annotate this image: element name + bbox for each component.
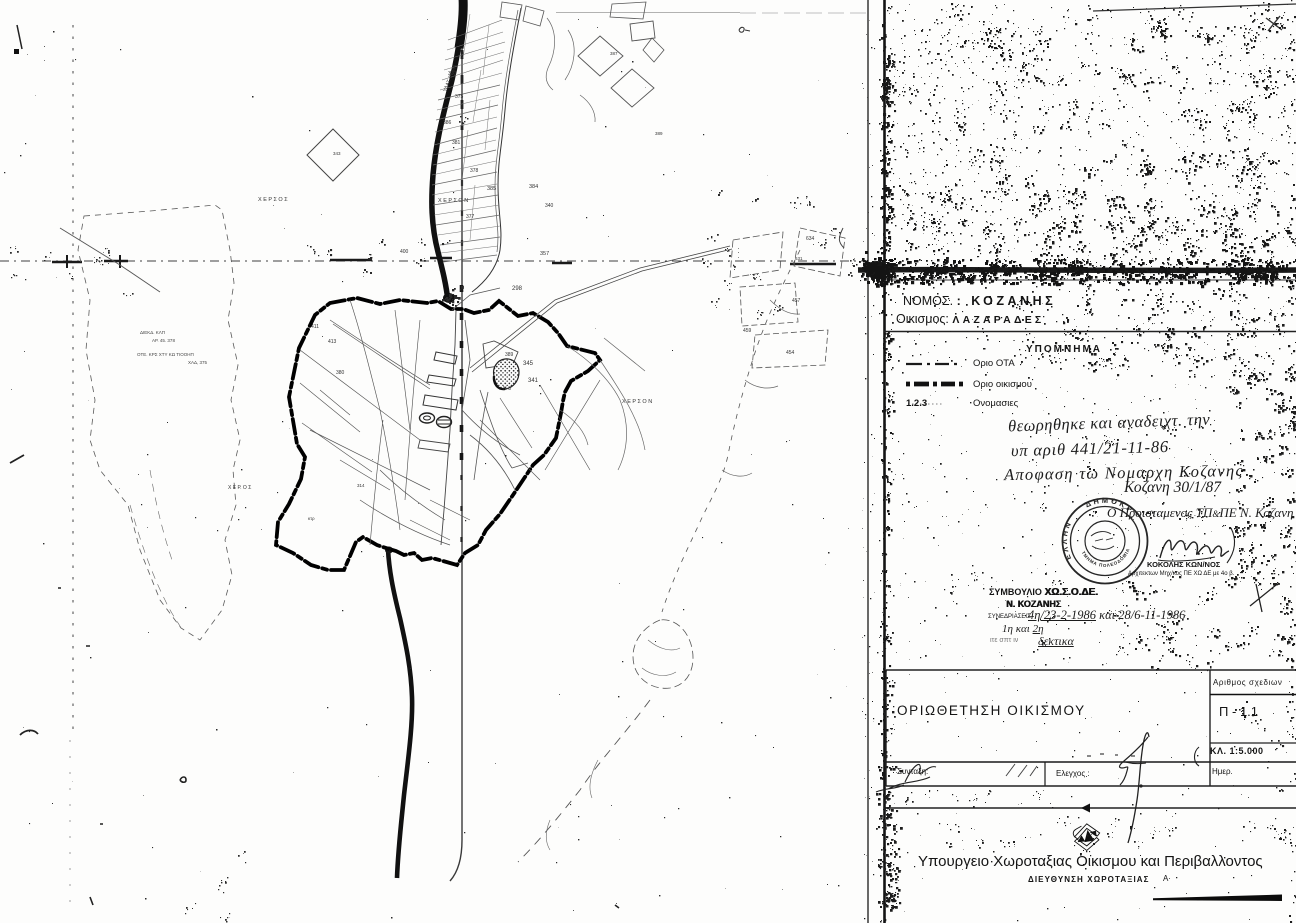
svg-text:314: 314 (357, 483, 365, 488)
svg-text:343: 343 (333, 151, 341, 156)
svg-text:387: 387 (610, 51, 618, 56)
svg-text:341: 341 (528, 378, 539, 384)
svg-text:634: 634 (806, 236, 815, 242)
svg-text:ΕΛΛΗΝ: ΕΛΛΗΝ (1060, 519, 1074, 562)
svg-text:κτρ: κτρ (308, 516, 315, 521)
svg-text:345: 345 (523, 361, 534, 367)
svg-text:ΤΜΗΜΑ ΠΟΛΕΟΔΟΜΙΑΣ: ΤΜΗΜΑ ΠΟΛΕΟΔΟΜΙΑΣ (0, 0, 1131, 568)
svg-text:ΟΤΕ. ΚΡΣ ΧΤΥ ΚΩ ΤΙΟΟΗΠ: ΟΤΕ. ΚΡΣ ΧΤΥ ΚΩ ΤΙΟΟΗΠ (137, 352, 194, 357)
svg-text:457: 457 (792, 298, 801, 304)
svg-text:Χ Ε Ρ Σ Ο Σ: Χ Ε Ρ Σ Ο Σ (258, 197, 288, 203)
svg-text:400: 400 (400, 249, 409, 255)
svg-text:386: 386 (443, 120, 452, 126)
svg-text:Χ Ε Ρ Σ Ο Ν: Χ Ε Ρ Σ Ο Ν (622, 399, 652, 405)
svg-text:Ν-3: Ν-3 (503, 386, 511, 392)
svg-text:Χ Ε Ρ Σ Ο Ν: Χ Ε Ρ Σ Ο Ν (438, 198, 468, 204)
svg-text:ΧΑΔ, 375: ΧΑΔ, 375 (188, 360, 208, 365)
svg-text:378: 378 (470, 168, 479, 174)
svg-text:389: 389 (505, 352, 514, 358)
svg-text:454: 454 (786, 350, 795, 356)
svg-text:381: 381 (452, 140, 461, 146)
svg-text:385: 385 (487, 186, 496, 192)
svg-text:Χ Ε Ρ. Ο Σ: Χ Ε Ρ. Ο Σ (228, 485, 251, 491)
svg-text:631: 631 (795, 256, 803, 261)
svg-text:ΔΙΕΚΔ. ΚΛΠ: ΔΙΕΚΔ. ΚΛΠ (140, 330, 165, 335)
svg-text:413: 413 (328, 339, 337, 345)
svg-text:380: 380 (336, 370, 345, 376)
svg-text:298: 298 (512, 286, 523, 292)
svg-text:377: 377 (466, 214, 475, 220)
svg-text:459: 459 (743, 328, 752, 334)
svg-text:ΑΡ. 45. 378: ΑΡ. 45. 378 (152, 338, 175, 343)
svg-text:384: 384 (529, 184, 538, 190)
svg-text:357: 357 (540, 251, 549, 257)
svg-text:375: 375 (455, 94, 464, 100)
svg-text:340: 340 (545, 203, 554, 209)
svg-text:411: 411 (311, 324, 319, 330)
svg-text:389: 389 (655, 131, 663, 136)
